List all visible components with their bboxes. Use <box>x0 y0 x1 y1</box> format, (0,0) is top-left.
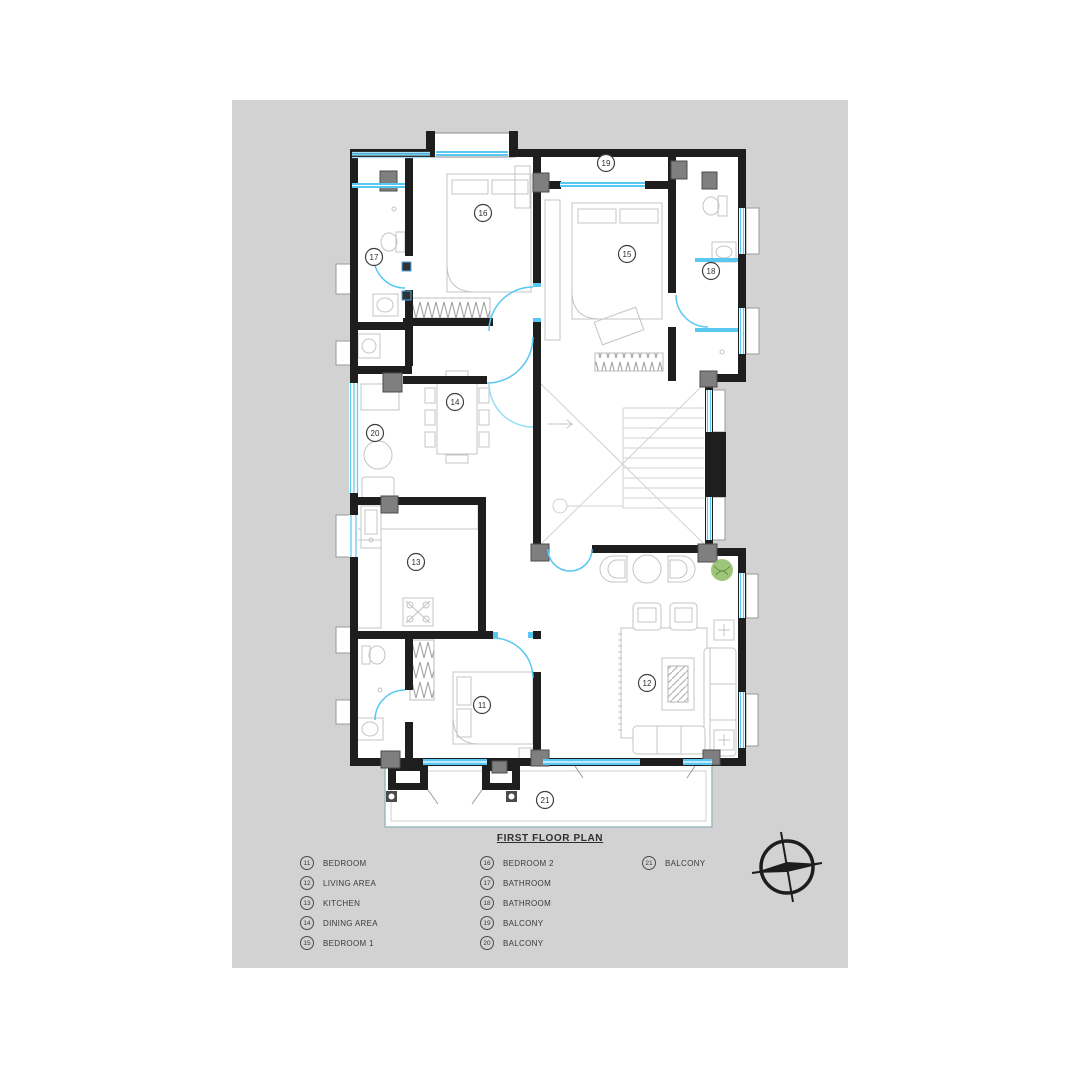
legend-number: 17 <box>480 876 494 890</box>
legend-number: 20 <box>480 936 494 950</box>
legend-number: 21 <box>642 856 656 870</box>
legend-number: 18 <box>480 896 494 910</box>
legend-label: DINING AREA <box>323 919 378 928</box>
plan-title: FIRST FLOOR PLAN <box>430 833 670 844</box>
legend-label: LIVING AREA <box>323 879 376 888</box>
legend-item-15: 15BEDROOM 1 <box>300 933 378 953</box>
legend-label: KITCHEN <box>323 899 360 908</box>
legend-label: BATHROOM <box>503 879 551 888</box>
legend-label: BEDROOM <box>323 859 366 868</box>
legend-label: BEDROOM 1 <box>323 939 374 948</box>
legend-item-19: 19BALCONY <box>480 913 554 933</box>
legend-number: 11 <box>300 856 314 870</box>
legend-column-2: 16BEDROOM 217BATHROOM18BATHROOM19BALCONY… <box>480 853 554 953</box>
room-marker-number-17: 17 <box>370 253 379 262</box>
legend-item-11: 11BEDROOM <box>300 853 378 873</box>
room-marker-number-13: 13 <box>412 558 421 567</box>
legend-item-17: 17BATHROOM <box>480 873 554 893</box>
room-marker-number-21: 21 <box>541 796 550 805</box>
legend-label: BATHROOM <box>503 899 551 908</box>
legend-number: 16 <box>480 856 494 870</box>
plant-icon <box>711 559 733 581</box>
room-marker-number-11: 11 <box>478 701 487 710</box>
legend-column-3: 21BALCONY <box>642 853 705 873</box>
legend-label: BEDROOM 2 <box>503 859 554 868</box>
legend-item-18: 18BATHROOM <box>480 893 554 913</box>
room-marker-number-14: 14 <box>451 398 460 407</box>
legend-number: 12 <box>300 876 314 890</box>
north-compass-icon <box>752 832 822 902</box>
legend-item-12: 12LIVING AREA <box>300 873 378 893</box>
room-marker-number-18: 18 <box>707 267 716 276</box>
legend-item-20: 20BALCONY <box>480 933 554 953</box>
legend-item-14: 14DINING AREA <box>300 913 378 933</box>
room-marker-number-20: 20 <box>371 429 380 438</box>
legend-item-21: 21BALCONY <box>642 853 705 873</box>
room-marker-number-15: 15 <box>623 250 632 259</box>
legend-label: BALCONY <box>503 939 543 948</box>
room-marker-number-16: 16 <box>479 209 488 218</box>
legend-number: 19 <box>480 916 494 930</box>
legend-item-16: 16BEDROOM 2 <box>480 853 554 873</box>
legend-number: 14 <box>300 916 314 930</box>
legend-item-13: 13KITCHEN <box>300 893 378 913</box>
legend-label: BALCONY <box>503 919 543 928</box>
legend-number: 15 <box>300 936 314 950</box>
legend-number: 13 <box>300 896 314 910</box>
floor-plan-sheet: 1112131415161718192021 FIRST FLOOR PLAN … <box>0 0 1080 1080</box>
legend-column-1: 11BEDROOM12LIVING AREA13KITCHEN14DINING … <box>300 853 378 953</box>
room-marker-number-19: 19 <box>602 159 611 168</box>
room-marker-number-12: 12 <box>643 679 652 688</box>
legend-label: BALCONY <box>665 859 705 868</box>
